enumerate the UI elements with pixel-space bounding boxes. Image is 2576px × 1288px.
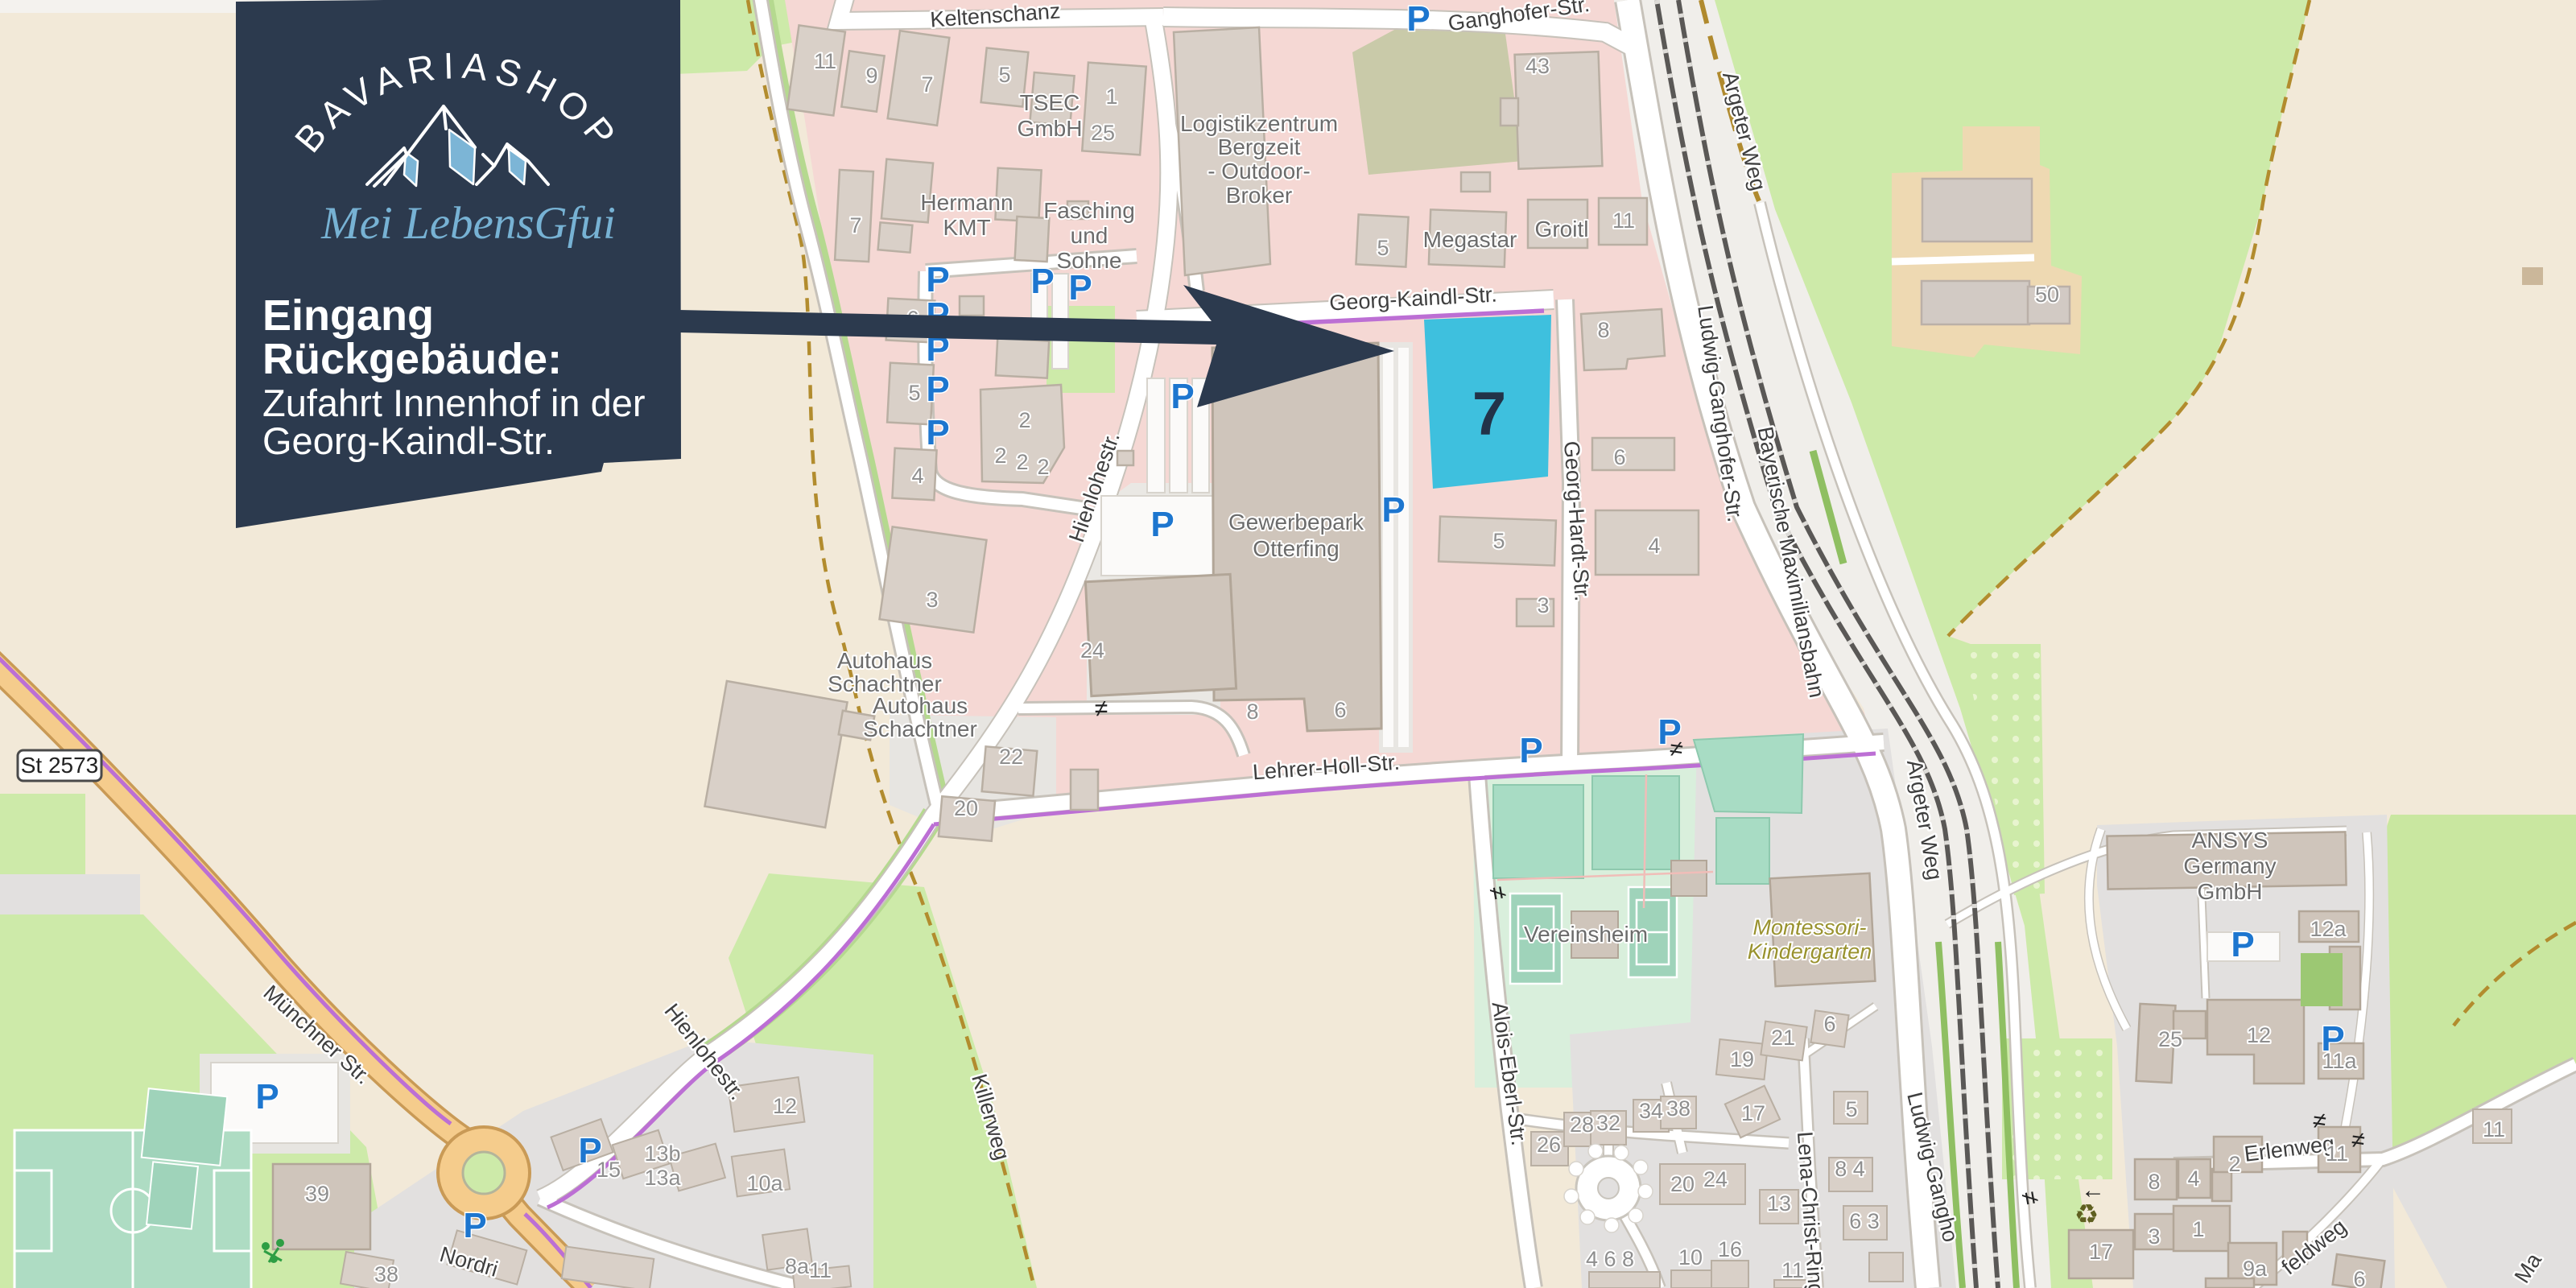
- svg-text:P: P: [2321, 1019, 2344, 1059]
- svg-text:7: 7: [921, 72, 933, 97]
- svg-text:Georg-Kaindl-Str.: Georg-Kaindl-Str.: [262, 419, 555, 462]
- svg-text:6: 6: [2353, 1267, 2365, 1288]
- svg-text:8: 8: [1597, 318, 1609, 342]
- svg-text:20: 20: [1670, 1172, 1695, 1196]
- svg-text:20: 20: [954, 796, 978, 820]
- svg-text:13a: 13a: [644, 1166, 681, 1190]
- svg-text:Groitl: Groitl: [1535, 217, 1589, 242]
- svg-text:5: 5: [1377, 236, 1389, 260]
- svg-text:GmbH: GmbH: [2198, 879, 2263, 904]
- svg-text:Fasching: Fasching: [1043, 198, 1135, 223]
- svg-text:8 4: 8 4: [1835, 1157, 1865, 1181]
- svg-text:2: 2: [2228, 1152, 2240, 1176]
- svg-text:Otterfing: Otterfing: [1253, 536, 1339, 561]
- svg-text:2: 2: [1016, 450, 1028, 474]
- svg-text:12: 12: [2247, 1023, 2271, 1047]
- svg-text:8a: 8a: [785, 1254, 810, 1278]
- svg-text:Gewerbepark: Gewerbepark: [1228, 510, 1364, 535]
- svg-text:≠: ≠: [1095, 696, 1108, 722]
- svg-text:♻: ♻: [2074, 1199, 2099, 1230]
- svg-text:8: 8: [2148, 1170, 2160, 1194]
- svg-text:P: P: [578, 1131, 601, 1170]
- svg-text:Rückgebäude:: Rückgebäude:: [262, 335, 562, 383]
- svg-text:Broker: Broker: [1226, 183, 1292, 208]
- svg-text:Logistikzentrum: Logistikzentrum: [1180, 111, 1338, 136]
- svg-text:32: 32: [1596, 1111, 1620, 1135]
- svg-text:- Outdoor-: - Outdoor-: [1207, 159, 1311, 184]
- svg-text:P: P: [926, 413, 949, 452]
- svg-text:11: 11: [814, 49, 836, 73]
- svg-text:43: 43: [1525, 54, 1550, 78]
- svg-text:und: und: [1071, 223, 1108, 248]
- svg-text:Megastar: Megastar: [1423, 227, 1517, 252]
- svg-text:11: 11: [1612, 208, 1635, 233]
- svg-text:10a: 10a: [746, 1171, 783, 1195]
- svg-text:11: 11: [809, 1258, 832, 1282]
- svg-text:13b: 13b: [644, 1141, 680, 1166]
- svg-text:12a: 12a: [2310, 917, 2347, 941]
- svg-text:P: P: [1519, 731, 1542, 770]
- svg-text:8: 8: [1246, 700, 1258, 724]
- svg-text:5: 5: [1492, 529, 1505, 553]
- svg-text:7: 7: [1472, 380, 1506, 448]
- svg-text:KMT: KMT: [943, 215, 990, 240]
- svg-text:St 2573: St 2573: [21, 753, 99, 778]
- svg-text:P: P: [1381, 490, 1405, 530]
- svg-text:11: 11: [2483, 1117, 2505, 1141]
- svg-text:3: 3: [926, 588, 938, 612]
- svg-text:13: 13: [1767, 1191, 1791, 1216]
- svg-text:Germany: Germany: [2183, 853, 2276, 878]
- svg-text:ANSYS: ANSYS: [2192, 828, 2268, 852]
- svg-text:←: ←: [2081, 1177, 2105, 1203]
- svg-text:4 6 8: 4 6 8: [1586, 1247, 1634, 1271]
- svg-text:3: 3: [1537, 593, 1549, 617]
- svg-text:TSEC: TSEC: [1020, 90, 1080, 115]
- svg-text:38: 38: [374, 1262, 398, 1286]
- svg-text:4: 4: [911, 464, 923, 488]
- svg-text:19: 19: [1730, 1047, 1754, 1071]
- svg-text:P: P: [1406, 0, 1430, 39]
- svg-text:2: 2: [1018, 408, 1030, 432]
- svg-text:P: P: [1030, 262, 1054, 301]
- svg-text:P: P: [255, 1077, 279, 1117]
- svg-text:25: 25: [1091, 121, 1115, 145]
- svg-text:2: 2: [994, 444, 1006, 468]
- svg-text:17: 17: [1741, 1101, 1765, 1125]
- svg-text:7: 7: [849, 213, 861, 237]
- svg-text:GmbH: GmbH: [1018, 116, 1083, 141]
- svg-text:9a: 9a: [2243, 1257, 2268, 1281]
- svg-text:5: 5: [998, 63, 1010, 87]
- svg-text:12: 12: [773, 1094, 797, 1118]
- svg-text:Kindergarten: Kindergarten: [1748, 939, 1872, 964]
- svg-text:3: 3: [2148, 1224, 2160, 1249]
- svg-text:34: 34: [1639, 1099, 1663, 1123]
- svg-text:6 3: 6 3: [1849, 1209, 1880, 1233]
- svg-text:Autohaus: Autohaus: [837, 648, 932, 673]
- svg-text:1: 1: [2192, 1217, 2204, 1241]
- svg-text:P: P: [463, 1206, 486, 1245]
- svg-text:39: 39: [305, 1182, 329, 1206]
- svg-text:Montessori-: Montessori-: [1752, 915, 1866, 939]
- svg-text:16: 16: [1718, 1237, 1742, 1261]
- svg-text:9: 9: [865, 64, 877, 88]
- svg-text:6: 6: [1613, 445, 1625, 469]
- svg-text:17: 17: [2089, 1240, 2113, 1264]
- svg-text:24: 24: [1703, 1167, 1728, 1191]
- svg-text:10: 10: [1678, 1245, 1703, 1269]
- svg-text:11: 11: [2326, 1141, 2348, 1166]
- svg-text:P: P: [926, 260, 949, 299]
- svg-text:21: 21: [1771, 1026, 1795, 1050]
- svg-text:11: 11: [1781, 1258, 1804, 1282]
- svg-text:5: 5: [908, 381, 920, 405]
- svg-text:28: 28: [1570, 1113, 1594, 1137]
- svg-text:Eingang: Eingang: [262, 291, 434, 340]
- svg-text:Autohaus: Autohaus: [873, 693, 968, 718]
- svg-text:P: P: [1170, 377, 1194, 416]
- svg-text:P: P: [926, 369, 949, 409]
- svg-text:50: 50: [2035, 283, 2059, 307]
- svg-text:P: P: [1068, 268, 1092, 308]
- svg-text:Bergzeit: Bergzeit: [1218, 134, 1301, 159]
- svg-text:22: 22: [999, 745, 1023, 769]
- svg-text:Hermann: Hermann: [920, 190, 1013, 215]
- svg-text:1: 1: [1105, 85, 1117, 109]
- svg-text:25: 25: [2158, 1027, 2182, 1051]
- svg-text:Zufahrt Innenhof in der: Zufahrt Innenhof in der: [262, 382, 646, 424]
- svg-text:Schachtner: Schachtner: [863, 716, 977, 741]
- svg-text:5: 5: [1845, 1097, 1857, 1121]
- svg-text:Vereinsheim: Vereinsheim: [1524, 922, 1648, 947]
- svg-text:P: P: [2231, 925, 2254, 964]
- svg-text:26: 26: [1537, 1133, 1561, 1157]
- svg-text:4: 4: [1648, 534, 1660, 558]
- svg-text:6: 6: [1823, 1012, 1835, 1036]
- svg-text:6: 6: [1334, 698, 1346, 722]
- svg-text:2: 2: [1037, 455, 1049, 479]
- svg-text:Mei LebensGfui: Mei LebensGfui: [320, 198, 616, 249]
- svg-text:P: P: [1150, 505, 1174, 544]
- svg-text:38: 38: [1666, 1096, 1690, 1121]
- svg-text:4: 4: [2187, 1166, 2199, 1191]
- svg-text:24: 24: [1080, 638, 1104, 663]
